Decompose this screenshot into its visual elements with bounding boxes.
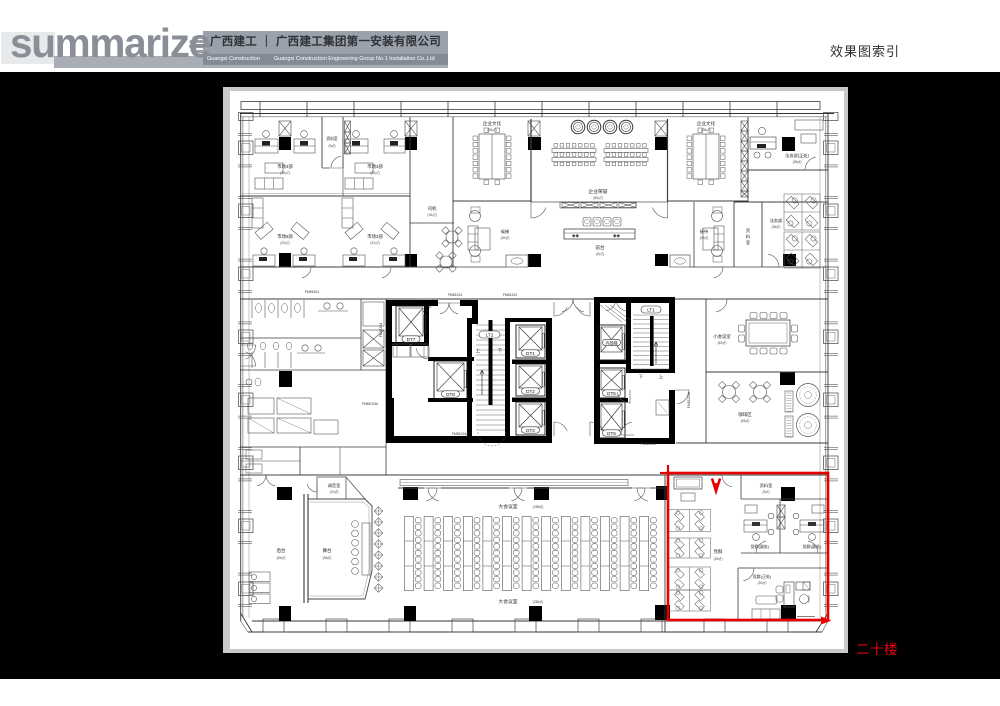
svg-text:DT8: DT8 — [446, 392, 455, 397]
svg-text:内部梯: 内部梯 — [606, 339, 618, 345]
svg-text:(9㎡): (9㎡) — [762, 489, 769, 494]
svg-text:FM81224: FM81224 — [448, 293, 462, 297]
svg-text:(20㎡): (20㎡) — [501, 235, 510, 240]
svg-text:(22㎡): (22㎡) — [280, 240, 289, 245]
svg-text:室: 室 — [746, 239, 750, 245]
svg-text:(15㎡): (15㎡) — [427, 212, 436, 217]
svg-text:法务部(正处): 法务部(正处) — [785, 152, 809, 159]
svg-text:◆◆: ◆◆ — [613, 233, 621, 238]
svg-text:(238㎡): (238㎡) — [533, 504, 544, 509]
svg-text:党群(副处): 党群(副处) — [803, 543, 822, 549]
svg-text:前台: 前台 — [595, 244, 605, 251]
svg-text:(28㎡): (28㎡) — [793, 159, 802, 164]
svg-text:后台: 后台 — [277, 547, 286, 554]
svg-text:DT6: DT6 — [607, 431, 616, 436]
svg-text:党群(正处): 党群(正处) — [753, 573, 772, 579]
svg-text:(40㎡): (40㎡) — [718, 340, 727, 345]
svg-text:接待: 接待 — [700, 228, 709, 235]
svg-text:DT2: DT2 — [526, 389, 535, 394]
svg-text:小会议室: 小会议室 — [713, 333, 731, 340]
svg-text:企业文化: 企业文化 — [483, 120, 502, 127]
svg-text:市场4部: 市场4部 — [277, 163, 293, 170]
svg-text:资: 资 — [746, 227, 750, 234]
svg-text:(22㎡): (22㎡) — [280, 170, 289, 175]
svg-text:DT1: DT1 — [526, 351, 535, 356]
svg-text:FM81224b: FM81224b — [687, 392, 691, 408]
svg-text:(28㎡): (28㎡) — [487, 127, 496, 132]
svg-text:(9㎡): (9㎡) — [328, 143, 335, 148]
svg-text:◆◆: ◆◆ — [572, 233, 580, 238]
svg-text:企业文化: 企业文化 — [697, 120, 716, 127]
svg-text:FM81024a: FM81024a — [452, 432, 468, 436]
svg-text:候梯: 候梯 — [501, 228, 509, 235]
svg-text:(238㎡): (238㎡) — [533, 599, 544, 604]
svg-text:咖啡区: 咖啡区 — [738, 411, 752, 418]
svg-text:LT2: LT2 — [486, 333, 494, 338]
svg-text:(45㎡): (45㎡) — [277, 555, 286, 560]
svg-text:DT5: DT5 — [607, 391, 616, 396]
svg-text:下: 下 — [639, 374, 643, 380]
svg-text:法务部: 法务部 — [770, 217, 783, 224]
svg-text:(45㎡): (45㎡) — [741, 418, 750, 423]
svg-text:(36㎡): (36㎡) — [772, 224, 781, 229]
svg-text:资料室: 资料室 — [326, 136, 338, 141]
svg-text:FM81024b: FM81024b — [362, 402, 378, 406]
svg-text:DT3: DT3 — [526, 428, 535, 433]
svg-text:FM81224: FM81224 — [503, 293, 517, 297]
svg-text:大会议室: 大会议室 — [498, 598, 517, 605]
svg-text:料: 料 — [746, 233, 751, 240]
svg-text:市场3部: 市场3部 — [367, 163, 383, 170]
svg-text:(35㎡): (35㎡) — [323, 555, 332, 560]
svg-text:上: 上 — [476, 347, 481, 353]
svg-text:大会议室: 大会议室 — [498, 503, 517, 510]
svg-text:司机: 司机 — [428, 205, 437, 212]
svg-text:(22㎡): (22㎡) — [370, 170, 379, 175]
svg-text:下: 下 — [498, 348, 503, 354]
svg-text:(25㎡): (25㎡) — [714, 556, 723, 561]
svg-text:FM81224b: FM81224b — [640, 442, 656, 446]
svg-text:(20㎡): (20㎡) — [700, 235, 709, 240]
svg-text:市场2部: 市场2部 — [367, 233, 383, 240]
svg-text:舞台: 舞台 — [323, 547, 332, 554]
svg-text:资料室: 资料室 — [760, 482, 773, 489]
svg-text:调音室: 调音室 — [328, 482, 341, 489]
svg-text:(8㎡): (8㎡) — [596, 251, 604, 256]
svg-text:(12㎡): (12㎡) — [330, 489, 339, 494]
svg-text:(28㎡): (28㎡) — [701, 127, 710, 132]
svg-text:上: 上 — [659, 373, 663, 379]
svg-text:LT1: LT1 — [647, 308, 655, 313]
svg-text:党群: 党群 — [714, 548, 723, 555]
svg-text:(65㎡): (65㎡) — [593, 195, 602, 200]
svg-text:(20㎡): (20㎡) — [758, 580, 767, 585]
svg-text:FM81524: FM81524 — [379, 323, 383, 337]
svg-text:市场5部: 市场5部 — [277, 233, 293, 240]
svg-text:(22㎡): (22㎡) — [370, 240, 379, 245]
svg-text:DT7: DT7 — [407, 337, 416, 342]
svg-text:企业荣誉: 企业荣誉 — [588, 188, 607, 195]
svg-text:FM81524: FM81524 — [305, 290, 319, 294]
